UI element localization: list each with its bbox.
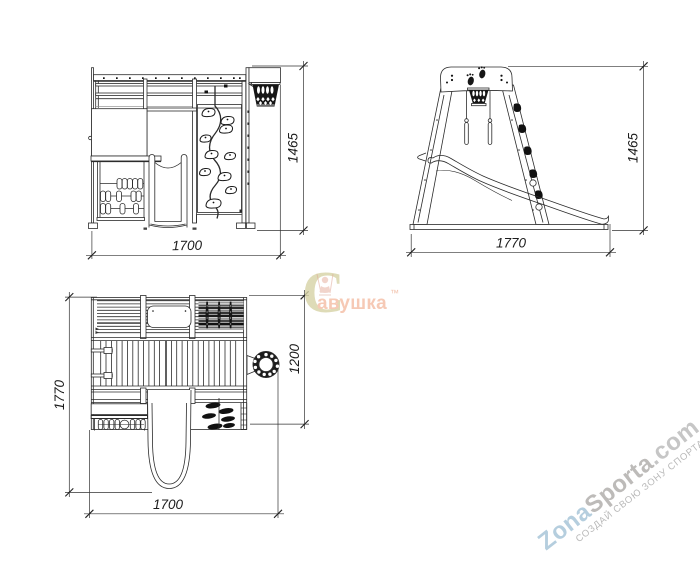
svg-text:™: ™ <box>390 288 399 298</box>
svg-text:1700: 1700 <box>172 238 203 254</box>
svg-text:1770: 1770 <box>496 236 527 251</box>
svg-text:1770: 1770 <box>52 379 67 410</box>
svg-text:1465: 1465 <box>286 132 301 163</box>
svg-text:1700: 1700 <box>153 497 184 512</box>
svg-text:авушка: авушка <box>317 293 387 314</box>
svg-text:1465: 1465 <box>626 132 641 163</box>
svg-text:1200: 1200 <box>287 343 302 374</box>
svg-text:ZonaSporta.com: ZonaSporta.com <box>533 414 700 556</box>
